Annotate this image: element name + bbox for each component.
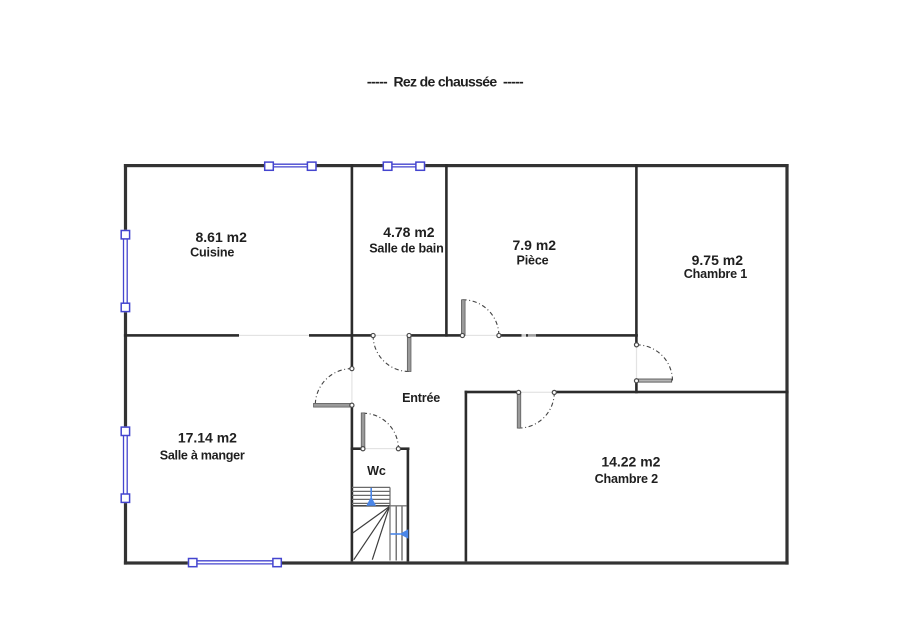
svg-text:9.75 m2: 9.75 m2 xyxy=(692,252,744,268)
svg-text:Chambre 1: Chambre 1 xyxy=(684,267,747,281)
svg-text:Salle à manger: Salle à manger xyxy=(160,449,245,463)
svg-text:----- Rez de chaussée -----: ----- Rez de chaussée ----- xyxy=(367,74,524,90)
svg-text:Wc: Wc xyxy=(367,464,386,478)
svg-text:Pièce: Pièce xyxy=(517,254,549,268)
svg-text:8.61 m2: 8.61 m2 xyxy=(196,229,248,245)
svg-text:Chambre 2: Chambre 2 xyxy=(595,472,658,486)
svg-text:7.9 m2: 7.9 m2 xyxy=(513,237,557,253)
svg-text:Entrée: Entrée xyxy=(402,391,440,405)
svg-text:Cuisine: Cuisine xyxy=(190,246,234,260)
svg-text:4.78 m2: 4.78 m2 xyxy=(383,224,435,240)
svg-text:17.14 m2: 17.14 m2 xyxy=(178,430,237,446)
svg-text:Salle de bain: Salle de bain xyxy=(369,241,443,255)
svg-text:14.22 m2: 14.22 m2 xyxy=(601,453,660,469)
